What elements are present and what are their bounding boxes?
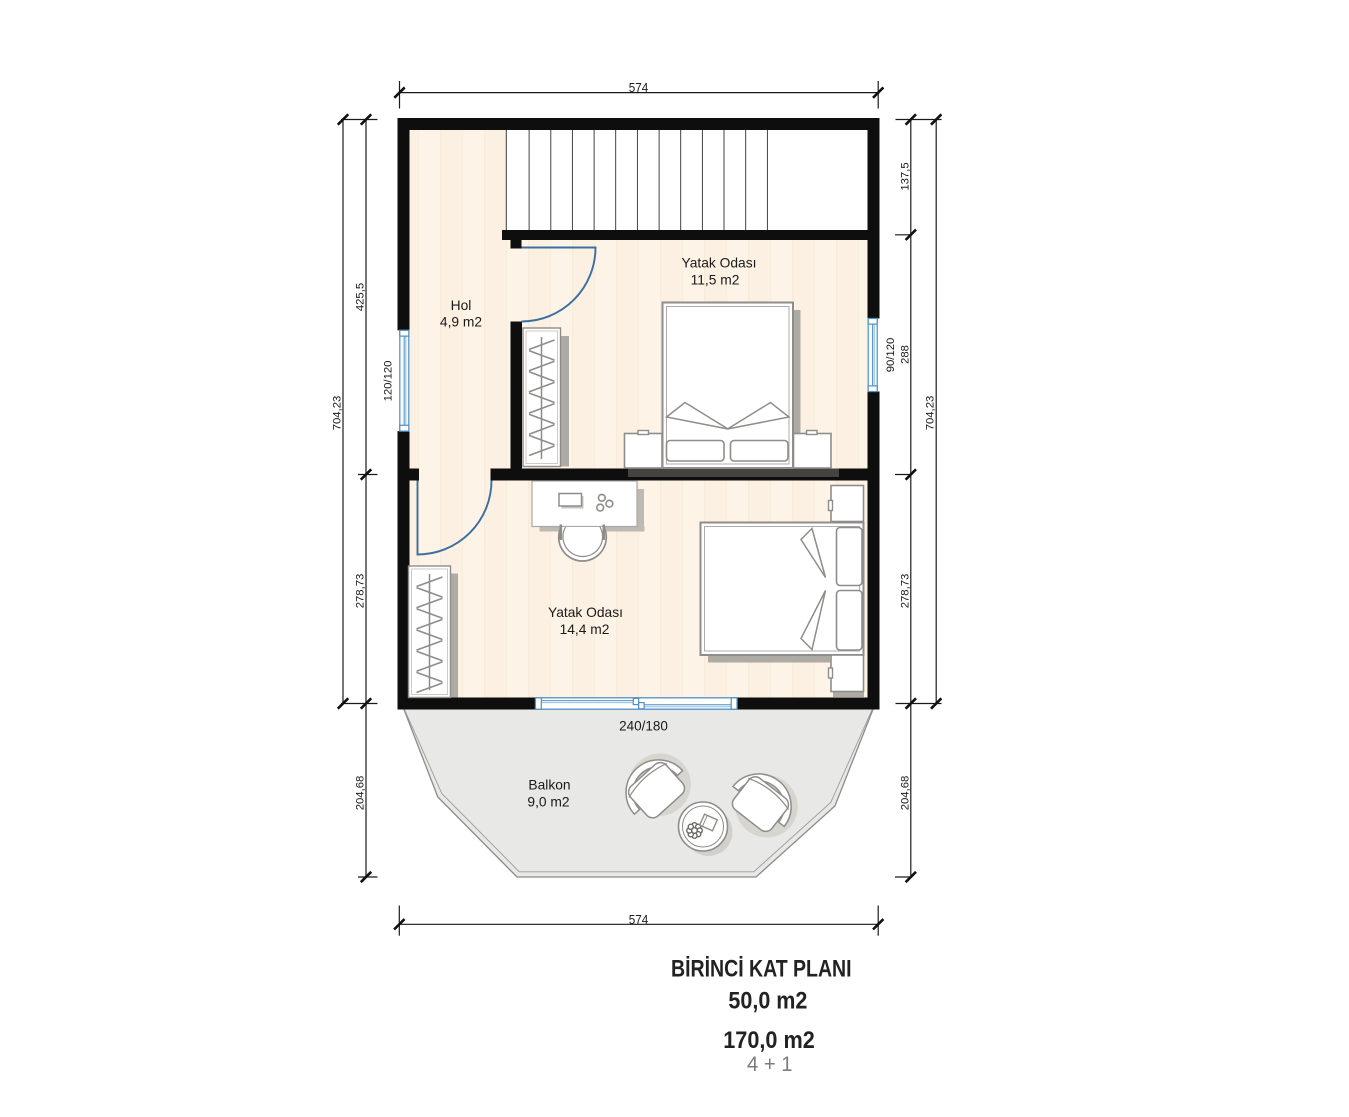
svg-text:204,68: 204,68 xyxy=(899,776,911,811)
svg-text:BİRİNCİ KAT PLANI: BİRİNCİ KAT PLANI xyxy=(671,956,852,983)
svg-text:137,5: 137,5 xyxy=(899,162,911,190)
svg-text:11,5 m2: 11,5 m2 xyxy=(691,273,740,288)
svg-text:Yatak Odası: Yatak Odası xyxy=(682,256,757,271)
svg-text:170,0 m2: 170,0 m2 xyxy=(723,1027,815,1054)
svg-text:Hol: Hol xyxy=(451,298,472,313)
svg-text:704,23: 704,23 xyxy=(925,396,937,431)
svg-text:4,9 m2: 4,9 m2 xyxy=(440,314,482,329)
svg-text:4 + 1: 4 + 1 xyxy=(747,1053,793,1076)
svg-text:120/120: 120/120 xyxy=(383,361,395,402)
svg-text:278,73: 278,73 xyxy=(355,574,367,609)
svg-text:425,5: 425,5 xyxy=(355,283,367,311)
svg-text:574: 574 xyxy=(629,912,649,927)
svg-text:Balkon: Balkon xyxy=(528,777,570,792)
svg-text:288: 288 xyxy=(899,345,911,364)
svg-text:204,68: 204,68 xyxy=(355,776,367,811)
svg-text:14,4 m2: 14,4 m2 xyxy=(560,622,610,637)
svg-text:240/180: 240/180 xyxy=(619,718,668,733)
svg-text:Yatak Odası: Yatak Odası xyxy=(548,605,623,620)
svg-text:704,23: 704,23 xyxy=(332,396,344,431)
svg-text:278,73: 278,73 xyxy=(899,574,911,609)
svg-text:90/120: 90/120 xyxy=(885,338,897,373)
svg-text:50,0 m2: 50,0 m2 xyxy=(728,988,807,1015)
svg-text:9,0 m2: 9,0 m2 xyxy=(527,794,569,809)
svg-text:574: 574 xyxy=(629,80,649,95)
